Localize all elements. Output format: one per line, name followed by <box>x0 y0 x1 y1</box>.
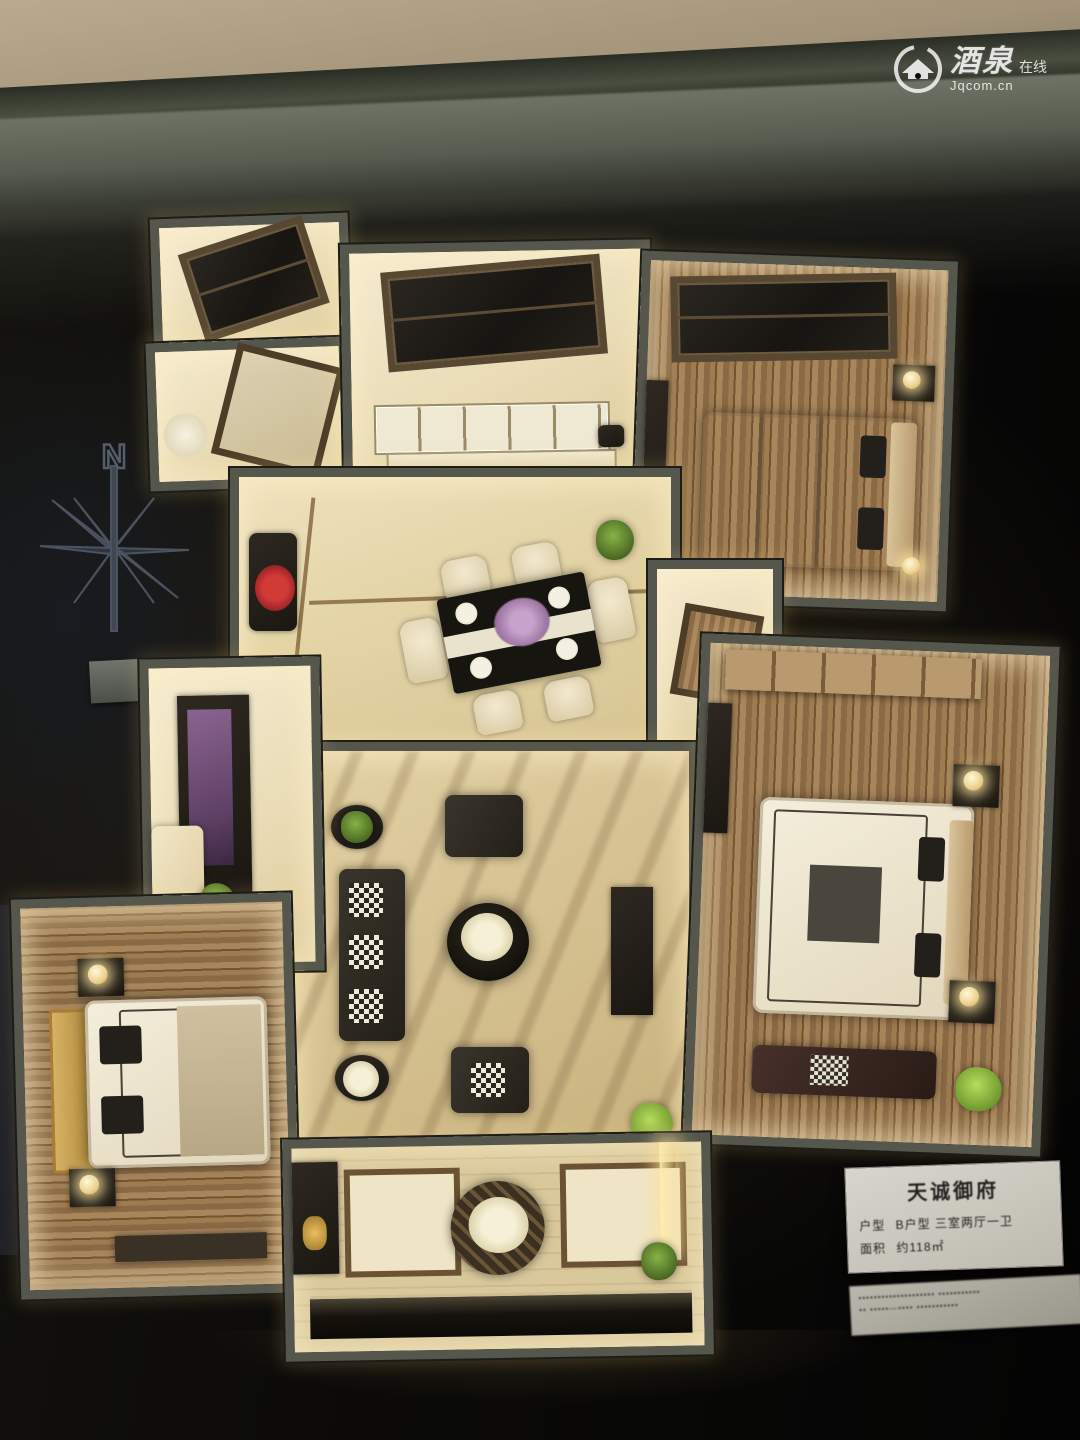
red-flower-arrangement <box>255 565 295 611</box>
bedside-rug <box>115 1232 268 1262</box>
placard-row-label: 面积 <box>860 1241 886 1256</box>
master-closet <box>703 703 732 834</box>
balcony-glass-rail <box>310 1290 693 1340</box>
skylight-window-frame <box>178 215 330 343</box>
balcony-shelf <box>291 1162 339 1275</box>
floor-cushion <box>344 1168 462 1278</box>
kitchen-sink <box>598 425 624 447</box>
sofa-long <box>339 869 405 1041</box>
room-master-bedroom <box>682 633 1059 1156</box>
placard-row-label: 户型 <box>859 1218 885 1233</box>
tv-cabinet <box>611 887 653 1015</box>
lit-wall-strip <box>659 1142 677 1254</box>
placard-row-value: 约118㎡ <box>896 1239 945 1255</box>
dining-set <box>394 526 664 748</box>
potted-plant <box>641 1242 678 1281</box>
bed-pillow <box>859 435 886 478</box>
plate <box>546 585 572 611</box>
watermark: 酒泉 在线 Jqcom.cn <box>892 34 1072 104</box>
armchair <box>451 1047 529 1113</box>
bed-pillow <box>918 837 946 882</box>
bed-throw-blanket <box>807 865 882 944</box>
potted-plant <box>596 520 634 560</box>
bed <box>698 412 917 571</box>
placard-row: 户型 B户型 三室两厅一卫 <box>859 1211 1049 1235</box>
checker-cushion <box>349 883 383 917</box>
room-balcony <box>282 1132 714 1361</box>
watermark-text: 酒泉 在线 Jqcom.cn <box>950 47 1047 92</box>
kitchen-cabinet-row <box>374 401 611 455</box>
white-flower-pot <box>343 1061 379 1097</box>
potted-plant <box>955 1066 1003 1112</box>
bed-pillow <box>99 1025 142 1064</box>
placard-row: 面积 约118㎡ <box>860 1234 1050 1258</box>
room-kitchen <box>340 239 654 492</box>
checker-cushion <box>349 935 383 969</box>
dining-chair <box>471 688 524 736</box>
watermark-logo-icon <box>892 43 944 95</box>
plate <box>554 636 580 662</box>
watermark-brand: 酒泉 <box>950 47 1014 77</box>
placard-row-value: B户型 三室两厅一卫 <box>895 1214 1013 1232</box>
white-flower-centerpiece <box>461 913 513 961</box>
room-living <box>286 742 698 1184</box>
watermark-domain: Jqcom.cn <box>950 79 1047 92</box>
bed-headboard <box>886 422 917 567</box>
table-lamp <box>902 557 921 576</box>
checker-cushion <box>471 1063 505 1097</box>
bedroom-north-window-frame <box>670 273 897 363</box>
kitchen-window-frame <box>380 254 608 373</box>
master-bed <box>752 797 974 1021</box>
watermark-suffix: 在线 <box>1019 60 1047 77</box>
bed <box>84 996 270 1169</box>
photo-frame: 酒泉 在线 Jqcom.cn N N <box>0 0 1080 1440</box>
bed-pillow <box>101 1095 144 1134</box>
compass-north-label: N <box>102 438 127 476</box>
placard-title: 天诚御府 <box>858 1172 1049 1208</box>
gold-ornament <box>302 1216 327 1250</box>
bed-pillow <box>857 507 884 550</box>
armchair <box>445 795 523 857</box>
door-leaf-frame <box>211 342 345 479</box>
bed-headboard <box>943 820 974 1005</box>
houndstooth-pillow <box>810 1055 849 1086</box>
bed-pillow <box>914 933 942 978</box>
plate <box>453 601 479 627</box>
bedroom-bench <box>751 1045 937 1100</box>
potted-plant <box>341 811 373 843</box>
bed-blanket <box>177 1004 265 1156</box>
dining-chair <box>542 675 595 723</box>
wash-basin <box>163 412 209 458</box>
dresser-row <box>725 649 982 699</box>
plate <box>468 655 494 681</box>
room-bedroom-west <box>11 892 301 1299</box>
info-placard: 天诚御府 户型 B户型 三室两厅一卫 面积 约118㎡ <box>844 1160 1064 1273</box>
checker-cushion <box>349 989 383 1023</box>
